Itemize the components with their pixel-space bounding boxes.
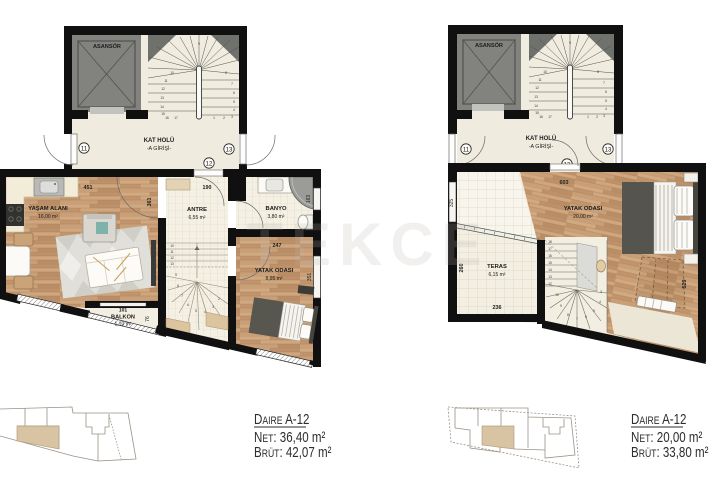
svg-text:7: 7 (181, 294, 183, 298)
svg-text:TEKCE: TEKCE (246, 211, 489, 278)
svg-text:451: 451 (84, 185, 93, 191)
svg-text:2: 2 (218, 297, 220, 301)
svg-text:11: 11 (538, 78, 542, 82)
svg-text:7: 7 (603, 81, 605, 85)
svg-text:163: 163 (306, 195, 312, 204)
svg-text:20,00 m²: 20,00 m² (573, 214, 593, 220)
svg-text:529: 529 (682, 280, 688, 289)
svg-text:7: 7 (576, 317, 578, 321)
svg-text:12: 12 (206, 162, 213, 168)
svg-text:236: 236 (493, 305, 502, 311)
svg-text:6: 6 (233, 91, 235, 95)
svg-text:76: 76 (145, 316, 151, 322)
svg-text:ASANSÖR: ASANSÖR (93, 43, 121, 50)
svg-text:KAT HOLÜ: KAT HOLÜ (526, 135, 557, 142)
svg-text:6: 6 (605, 90, 607, 94)
svg-text:1,10 m²: 1,10 m² (115, 322, 132, 328)
svg-text:5: 5 (233, 100, 235, 104)
svg-text:ASANSÖR: ASANSÖR (475, 42, 503, 49)
svg-text:12: 12 (170, 256, 174, 260)
svg-text:15: 15 (548, 261, 552, 265)
svg-text:YAŞAM ALANI: YAŞAM ALANI (28, 206, 68, 212)
svg-text:4: 4 (233, 108, 235, 112)
svg-text:101: 101 (119, 308, 128, 314)
svg-text:10: 10 (170, 244, 174, 248)
svg-text:12: 12 (161, 87, 165, 91)
svg-text:17: 17 (548, 115, 552, 119)
svg-text:1: 1 (587, 115, 589, 119)
svg-text:5: 5 (593, 309, 595, 313)
svg-text:9: 9 (569, 41, 571, 45)
svg-text:325: 325 (449, 199, 455, 208)
svg-text:BALKON: BALKON (111, 315, 135, 321)
svg-text:16: 16 (539, 115, 543, 119)
svg-text:8: 8 (177, 284, 179, 288)
svg-text:16: 16 (165, 116, 169, 120)
svg-text:12: 12 (548, 282, 552, 286)
svg-text:-A GİRİŞİ-: -A GİRİŞİ- (147, 145, 172, 152)
svg-text:4: 4 (605, 107, 607, 111)
svg-text:2: 2 (223, 116, 225, 120)
svg-text:14: 14 (548, 268, 552, 272)
svg-text:6,55 m²: 6,55 m² (189, 215, 206, 221)
svg-text:YATAK ODASI: YATAK ODASI (564, 206, 603, 212)
svg-text:12: 12 (535, 86, 539, 90)
svg-text:361: 361 (147, 198, 153, 207)
svg-text:10: 10 (170, 71, 174, 75)
svg-text:17: 17 (548, 247, 552, 251)
svg-text:ANTRE: ANTRE (187, 207, 207, 213)
svg-text:9: 9 (560, 304, 562, 308)
svg-text:13: 13 (605, 148, 612, 154)
svg-text:8: 8 (225, 71, 227, 75)
svg-text:4: 4 (599, 300, 601, 304)
svg-text:16: 16 (548, 254, 552, 258)
svg-text:190: 190 (203, 185, 212, 191)
svg-text:8: 8 (567, 313, 569, 317)
svg-text:7: 7 (231, 82, 233, 86)
svg-text:6,15 m²: 6,15 m² (489, 272, 506, 278)
svg-text:3: 3 (212, 305, 214, 309)
svg-text:13: 13 (160, 96, 164, 100)
svg-text:11: 11 (170, 250, 174, 254)
svg-text:6: 6 (585, 315, 587, 319)
svg-text:13: 13 (170, 262, 174, 266)
svg-text:14: 14 (160, 105, 164, 109)
svg-text:11: 11 (81, 147, 88, 153)
svg-text:603: 603 (560, 180, 569, 186)
svg-text:1: 1 (213, 116, 215, 120)
svg-text:8: 8 (597, 70, 599, 74)
svg-text:6: 6 (187, 303, 189, 307)
svg-text:KAT HOLÜ: KAT HOLÜ (144, 137, 175, 144)
svg-text:13: 13 (548, 275, 552, 279)
svg-text:16,00 m²: 16,00 m² (38, 214, 58, 220)
svg-text:11: 11 (463, 148, 470, 154)
svg-text:13: 13 (226, 148, 233, 154)
svg-text:9: 9 (175, 273, 177, 277)
svg-text:9: 9 (198, 42, 200, 46)
svg-text:2: 2 (596, 115, 598, 119)
svg-text:10: 10 (555, 293, 559, 297)
svg-text:11: 11 (164, 79, 168, 83)
svg-text:3: 3 (600, 290, 602, 294)
svg-text:-A GİRİŞİ-: -A GİRİŞİ- (529, 143, 554, 150)
svg-text:5: 5 (605, 99, 607, 103)
svg-text:3: 3 (603, 114, 605, 118)
svg-text:5: 5 (195, 309, 197, 313)
svg-text:TERAS: TERAS (487, 264, 507, 270)
svg-text:14: 14 (534, 104, 538, 108)
svg-text:3: 3 (231, 115, 233, 119)
svg-text:17: 17 (174, 116, 178, 120)
svg-text:10: 10 (543, 70, 547, 74)
svg-text:13: 13 (534, 95, 538, 99)
